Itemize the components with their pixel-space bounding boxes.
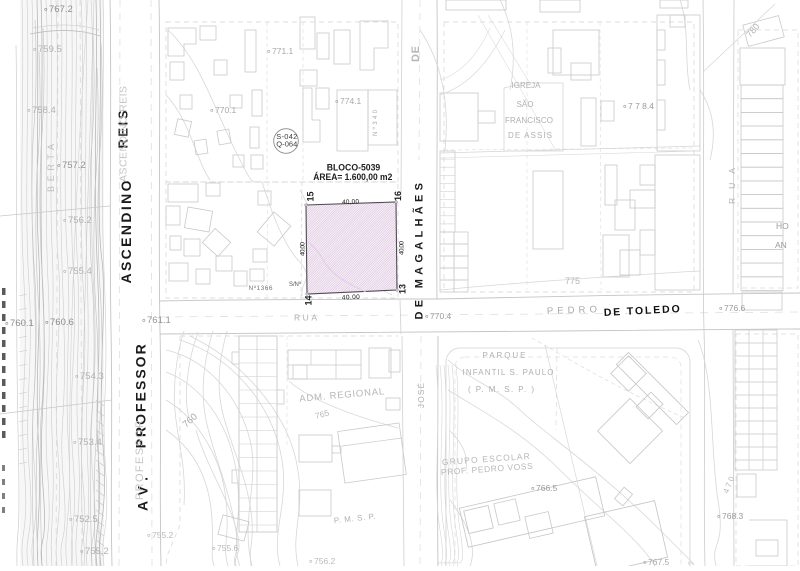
- svg-text:7 7 8.4: 7 7 8.4: [628, 101, 654, 111]
- svg-text:755.2: 755.2: [85, 546, 109, 557]
- svg-text:40,00: 40,00: [342, 294, 361, 302]
- svg-text:40,00: 40,00: [399, 241, 406, 255]
- svg-text:RUA: RUA: [727, 168, 737, 204]
- svg-text:IGREJA: IGREJA: [512, 81, 543, 90]
- svg-text:PROFESSOR: PROFESSOR: [134, 420, 146, 500]
- svg-text:755.2: 755.2: [152, 530, 174, 540]
- svg-text:INFANTIL S. PAULO: INFANTIL S. PAULO: [463, 368, 554, 377]
- svg-text:756.2: 756.2: [68, 215, 92, 226]
- svg-text:DE ASSIS: DE ASSIS: [508, 131, 554, 140]
- svg-text:SÃO: SÃO: [517, 100, 536, 109]
- svg-text:770.1: 770.1: [215, 105, 237, 115]
- svg-text:767.2: 767.2: [49, 4, 73, 15]
- svg-text:DE: DE: [410, 46, 422, 62]
- svg-text:760.6: 760.6: [50, 317, 74, 328]
- svg-text:759.5: 759.5: [38, 44, 62, 55]
- svg-text:767.5: 767.5: [648, 557, 670, 566]
- svg-text:758.4: 758.4: [32, 105, 56, 116]
- svg-text:766.5: 766.5: [536, 483, 558, 493]
- svg-text:15: 15: [305, 191, 315, 201]
- svg-text:761.1: 761.1: [147, 315, 171, 326]
- svg-text:Q-064: Q-064: [276, 139, 297, 148]
- svg-text:760.1: 760.1: [10, 318, 34, 329]
- svg-text:768.3: 768.3: [722, 511, 744, 521]
- svg-text:755.4: 755.4: [68, 266, 92, 277]
- svg-text:40,00: 40,00: [300, 242, 307, 256]
- svg-text:775: 775: [565, 276, 580, 286]
- svg-text:757.2: 757.2: [62, 160, 86, 171]
- svg-text:RUA: RUA: [294, 313, 317, 323]
- svg-text:ÁREA= 1.600,00 m2: ÁREA= 1.600,00 m2: [313, 172, 392, 183]
- svg-text:756.2: 756.2: [314, 556, 336, 566]
- svg-text:755.6: 755.6: [217, 543, 239, 553]
- svg-text:753.4: 753.4: [78, 437, 102, 448]
- svg-text:16: 16: [393, 191, 403, 201]
- svg-text:774.1: 774.1: [340, 96, 362, 106]
- svg-text:Nº1366: Nº1366: [249, 285, 273, 292]
- svg-text:13: 13: [398, 284, 408, 294]
- svg-text:ASCENDINO: ASCENDINO: [118, 180, 134, 283]
- svg-text:754.3: 754.3: [80, 371, 104, 382]
- svg-text:HO: HO: [776, 221, 789, 231]
- svg-text:771.1: 771.1: [272, 46, 294, 56]
- svg-text:Nº340: Nº340: [372, 109, 379, 136]
- svg-text:AN: AN: [775, 240, 787, 250]
- svg-text:14: 14: [304, 295, 314, 305]
- svg-text:JOSÉ: JOSÉ: [417, 383, 426, 408]
- svg-text:752.5: 752.5: [74, 514, 98, 525]
- svg-text:40,00: 40,00: [342, 198, 360, 206]
- svg-text:S/Nº: S/Nº: [289, 281, 302, 288]
- svg-text:770.4: 770.4: [430, 311, 452, 321]
- svg-text:FRANCISCO: FRANCISCO: [505, 116, 555, 125]
- svg-text:( P. M. S. P. ): ( P. M. S. P. ): [468, 385, 534, 394]
- svg-text:ASCENDINO REIS: ASCENDINO REIS: [118, 86, 130, 182]
- svg-text:776.6: 776.6: [724, 303, 746, 313]
